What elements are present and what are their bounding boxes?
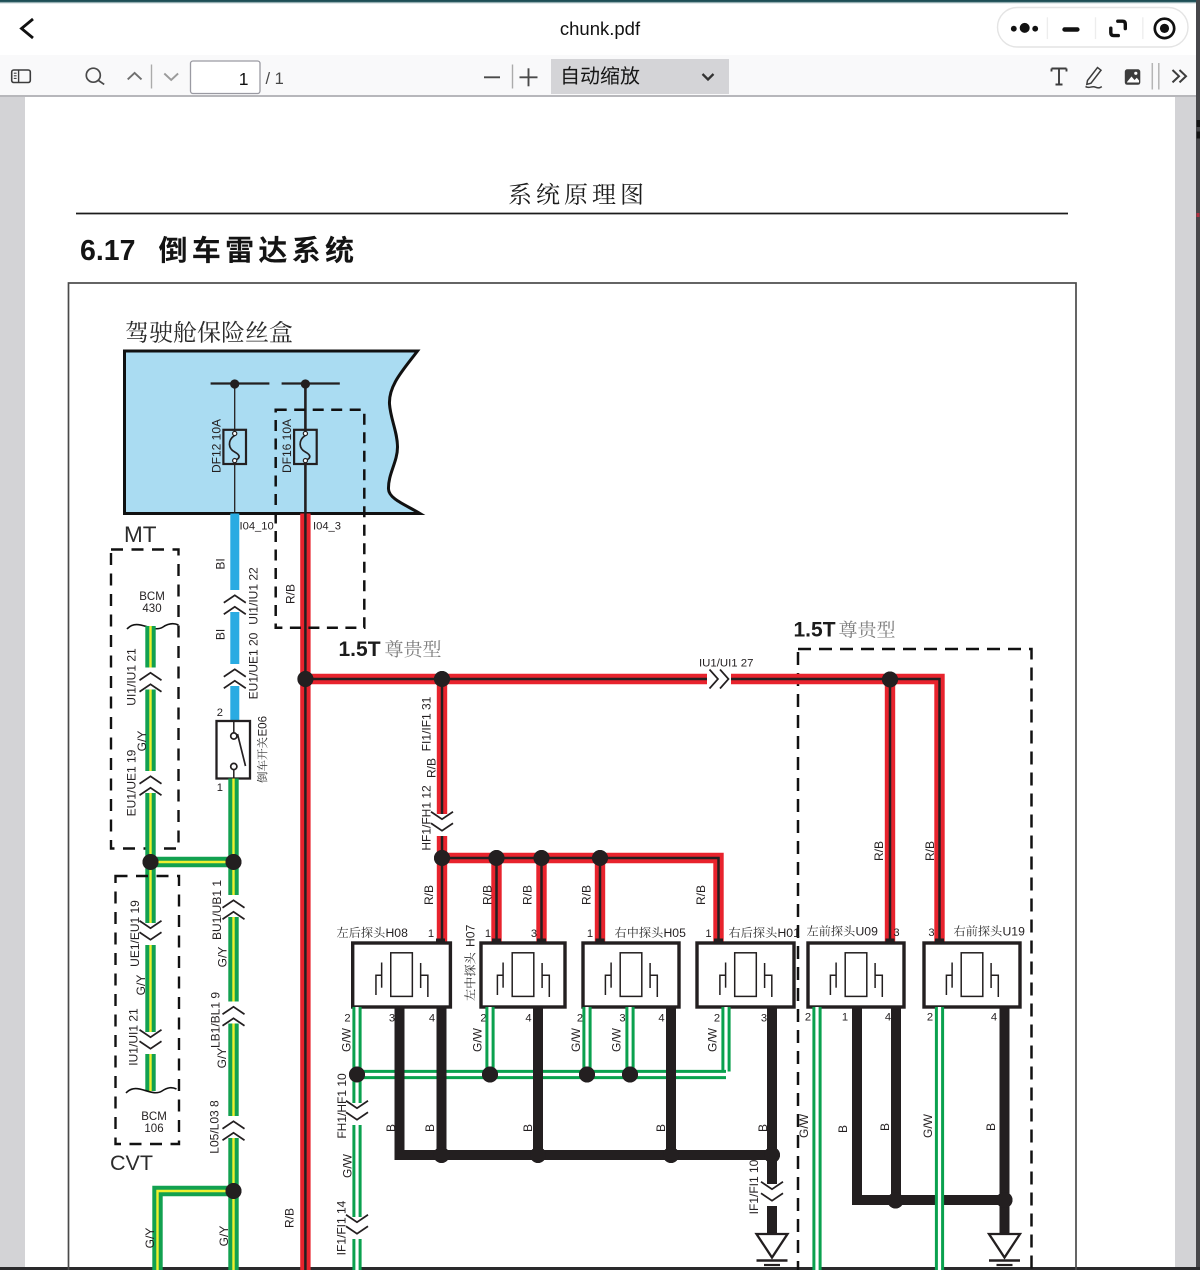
svg-text:2: 2 bbox=[217, 707, 223, 719]
svg-text:R/B: R/B bbox=[422, 885, 436, 905]
svg-text:1: 1 bbox=[842, 1012, 848, 1024]
svg-text:1: 1 bbox=[705, 928, 711, 940]
svg-text:BI: BI bbox=[214, 558, 228, 569]
svg-text:G/W: G/W bbox=[569, 1027, 583, 1052]
svg-text:B: B bbox=[521, 1124, 535, 1132]
svg-text:2: 2 bbox=[805, 1012, 811, 1024]
svg-text:4: 4 bbox=[885, 1012, 891, 1024]
svg-text:IF1/FI1 14: IF1/FI1 14 bbox=[335, 1200, 349, 1255]
svg-text:I04_3: I04_3 bbox=[313, 521, 341, 533]
svg-text:LB1/BL1 9: LB1/BL1 9 bbox=[209, 992, 223, 1048]
svg-text:DF12 10A: DF12 10A bbox=[210, 419, 224, 473]
svg-text:B: B bbox=[423, 1124, 437, 1132]
svg-text:G/Y: G/Y bbox=[216, 947, 230, 968]
svg-text:G/W: G/W bbox=[471, 1027, 485, 1052]
svg-text:106: 106 bbox=[144, 1123, 163, 1135]
svg-text:B: B bbox=[836, 1125, 850, 1133]
svg-text:CVT: CVT bbox=[110, 1151, 153, 1175]
svg-text:1.5T: 1.5T bbox=[339, 638, 381, 661]
svg-text:L05/L03 8: L05/L03 8 bbox=[208, 1100, 222, 1154]
svg-text:IU1/UI1 27: IU1/UI1 27 bbox=[699, 658, 753, 670]
svg-text:3: 3 bbox=[531, 928, 537, 940]
svg-text:H08: H08 bbox=[386, 926, 409, 940]
svg-text:FH1/HF1 10: FH1/HF1 10 bbox=[335, 1073, 349, 1139]
svg-text:UI1/IU1 22: UI1/IU1 22 bbox=[247, 567, 261, 625]
svg-text:4: 4 bbox=[991, 1012, 997, 1024]
svg-text:1: 1 bbox=[217, 782, 223, 794]
svg-text:4: 4 bbox=[525, 1013, 531, 1025]
svg-text:1: 1 bbox=[239, 69, 249, 89]
svg-text:R/B: R/B bbox=[283, 1208, 297, 1228]
svg-text:6.17: 6.17 bbox=[80, 235, 135, 267]
svg-text:1: 1 bbox=[587, 928, 593, 940]
svg-text:U09: U09 bbox=[856, 925, 879, 939]
svg-text:3: 3 bbox=[893, 927, 899, 939]
svg-text:FI1/IF1 31: FI1/IF1 31 bbox=[420, 696, 434, 751]
svg-text:R/B: R/B bbox=[521, 885, 535, 905]
svg-text:4: 4 bbox=[658, 1013, 664, 1025]
svg-text:G/W: G/W bbox=[706, 1027, 720, 1052]
svg-text:4: 4 bbox=[429, 1013, 435, 1025]
svg-text:E06: E06 bbox=[258, 716, 270, 736]
svg-text:H05: H05 bbox=[664, 926, 687, 940]
svg-text:R/B: R/B bbox=[694, 885, 708, 905]
svg-text:2: 2 bbox=[344, 1013, 350, 1025]
svg-text:2: 2 bbox=[927, 1012, 933, 1024]
svg-text:G/W: G/W bbox=[797, 1113, 811, 1138]
svg-text:3: 3 bbox=[761, 1013, 767, 1025]
svg-text:G/Y: G/Y bbox=[217, 1226, 231, 1247]
svg-text:B: B bbox=[756, 1124, 770, 1132]
svg-text:MT: MT bbox=[124, 522, 157, 547]
svg-text:B: B bbox=[878, 1123, 892, 1131]
svg-text:UE1/EU1 19: UE1/EU1 19 bbox=[128, 900, 142, 967]
svg-text:R/B: R/B bbox=[425, 758, 439, 778]
svg-text:G/W: G/W bbox=[341, 1153, 355, 1178]
svg-text:G/Y: G/Y bbox=[134, 975, 148, 996]
svg-text:2: 2 bbox=[714, 1013, 720, 1025]
svg-text:chunk.pdf: chunk.pdf bbox=[560, 18, 641, 39]
svg-text:1: 1 bbox=[485, 928, 491, 940]
svg-text:BU1/UB1 1: BU1/UB1 1 bbox=[210, 880, 224, 940]
svg-text:H07: H07 bbox=[464, 924, 478, 947]
svg-text:G/W: G/W bbox=[921, 1113, 935, 1138]
svg-text:R/B: R/B bbox=[481, 885, 495, 905]
svg-text:R/B: R/B bbox=[923, 841, 937, 861]
svg-text:EU1/UE1 19: EU1/UE1 19 bbox=[125, 749, 139, 816]
svg-text:U19: U19 bbox=[1003, 925, 1026, 939]
svg-text:G/W: G/W bbox=[610, 1027, 624, 1052]
svg-text:3: 3 bbox=[928, 927, 934, 939]
svg-text:R/B: R/B bbox=[284, 584, 298, 604]
svg-text:B: B bbox=[384, 1124, 398, 1132]
svg-text:1: 1 bbox=[428, 928, 434, 940]
svg-text:BI: BI bbox=[214, 629, 228, 640]
svg-text:G/Y: G/Y bbox=[215, 1048, 229, 1069]
svg-text:3: 3 bbox=[389, 1013, 395, 1025]
svg-text:DF16 10A: DF16 10A bbox=[280, 419, 294, 473]
svg-text:B: B bbox=[654, 1124, 668, 1132]
svg-text:R/B: R/B bbox=[872, 841, 886, 861]
svg-text:/ 1: / 1 bbox=[266, 70, 284, 88]
svg-text:R/B: R/B bbox=[580, 885, 594, 905]
svg-text:EU1/UE1 20: EU1/UE1 20 bbox=[247, 632, 261, 699]
svg-text:IF1/FI1 10: IF1/FI1 10 bbox=[747, 1159, 761, 1214]
svg-text:430: 430 bbox=[142, 603, 161, 615]
svg-text:IU1/UI1 21: IU1/UI1 21 bbox=[127, 1008, 141, 1066]
svg-text:BCM: BCM bbox=[141, 1111, 167, 1123]
svg-text:G/W: G/W bbox=[340, 1027, 354, 1052]
svg-text:G/Y: G/Y bbox=[135, 731, 149, 752]
svg-text:HF1/FH1 12: HF1/FH1 12 bbox=[420, 785, 434, 851]
svg-text:I04_10: I04_10 bbox=[240, 521, 274, 533]
svg-text:UI1/IU1 21: UI1/IU1 21 bbox=[125, 648, 139, 706]
svg-text:H01: H01 bbox=[778, 926, 801, 940]
svg-text:1.5T: 1.5T bbox=[794, 619, 836, 642]
svg-text:B: B bbox=[984, 1123, 998, 1131]
svg-text:G/Y: G/Y bbox=[143, 1228, 157, 1249]
svg-text:BCM: BCM bbox=[139, 591, 165, 603]
svg-text:3: 3 bbox=[619, 1013, 625, 1025]
svg-text:2: 2 bbox=[577, 1013, 583, 1025]
